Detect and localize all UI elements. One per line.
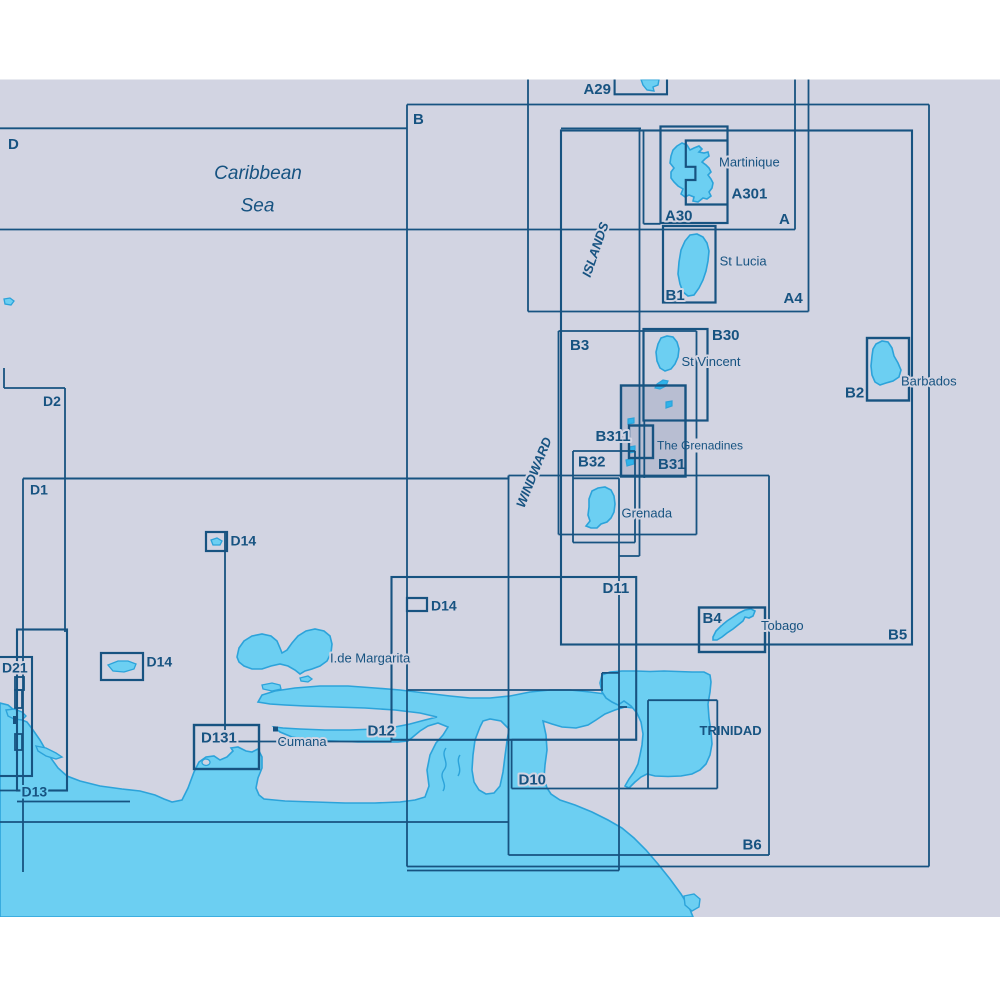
svg-text:D21: D21 xyxy=(2,660,28,676)
svg-text:D10: D10 xyxy=(519,772,547,789)
svg-text:B6: B6 xyxy=(743,837,762,854)
svg-text:B: B xyxy=(413,111,424,128)
svg-text:B3: B3 xyxy=(570,337,589,354)
svg-text:B30: B30 xyxy=(712,327,740,344)
svg-text:I.de Margarita: I.de Margarita xyxy=(330,651,411,666)
svg-text:Barbados: Barbados xyxy=(901,374,957,389)
svg-text:D11: D11 xyxy=(603,580,630,597)
svg-text:D1: D1 xyxy=(30,482,48,498)
svg-text:St Lucia: St Lucia xyxy=(720,254,768,269)
svg-text:TRINIDAD: TRINIDAD xyxy=(700,723,762,738)
svg-text:Martinique: Martinique xyxy=(719,155,780,170)
svg-text:B1: B1 xyxy=(666,287,685,304)
svg-text:B32: B32 xyxy=(578,454,606,471)
svg-text:D131: D131 xyxy=(201,730,237,747)
svg-text:The Grenadines: The Grenadines xyxy=(657,439,743,453)
svg-text:A29: A29 xyxy=(583,81,611,98)
svg-text:B2: B2 xyxy=(845,385,864,402)
svg-text:B4: B4 xyxy=(703,610,723,627)
svg-text:Grenada: Grenada xyxy=(622,506,673,521)
svg-text:A: A xyxy=(779,211,790,228)
svg-text:D: D xyxy=(8,136,19,153)
svg-text:B31: B31 xyxy=(658,456,686,473)
svg-text:Cumana: Cumana xyxy=(278,734,328,749)
svg-text:A301: A301 xyxy=(732,186,768,203)
svg-text:D14: D14 xyxy=(231,533,257,549)
svg-text:Sea: Sea xyxy=(241,196,275,217)
svg-text:B5: B5 xyxy=(888,627,907,644)
svg-text:D2: D2 xyxy=(43,393,61,409)
svg-text:D14: D14 xyxy=(147,654,173,670)
svg-text:Tobago: Tobago xyxy=(761,618,804,633)
svg-text:D12: D12 xyxy=(368,723,396,740)
svg-text:Caribbean: Caribbean xyxy=(214,163,302,184)
svg-text:D13: D13 xyxy=(22,784,48,800)
svg-text:A30: A30 xyxy=(665,208,693,225)
svg-text:B311: B311 xyxy=(596,428,631,445)
svg-text:St Vincent: St Vincent xyxy=(682,354,741,369)
svg-text:D14: D14 xyxy=(431,598,457,614)
svg-text:A4: A4 xyxy=(784,290,804,307)
